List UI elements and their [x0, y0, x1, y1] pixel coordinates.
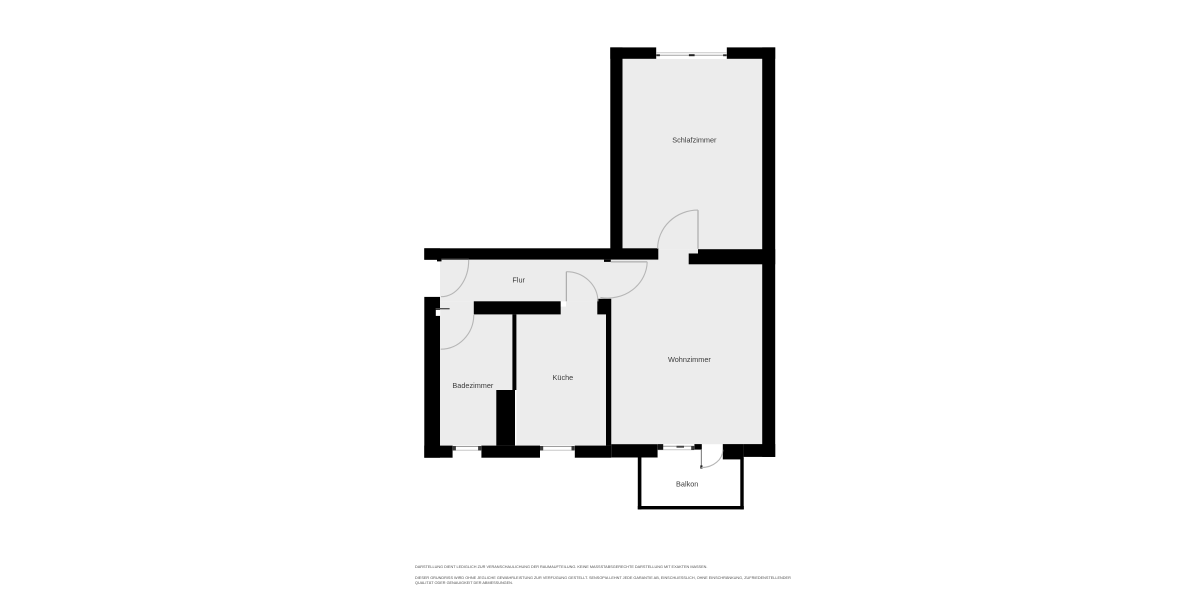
svg-text:Flur: Flur [512, 276, 525, 285]
svg-text:Küche: Küche [553, 373, 574, 382]
svg-text:Schlafzimmer: Schlafzimmer [672, 136, 717, 145]
svg-text:Badezimmer: Badezimmer [452, 381, 494, 390]
svg-text:Balkon: Balkon [676, 479, 698, 488]
svg-text:Wohnzimmer: Wohnzimmer [668, 355, 711, 364]
